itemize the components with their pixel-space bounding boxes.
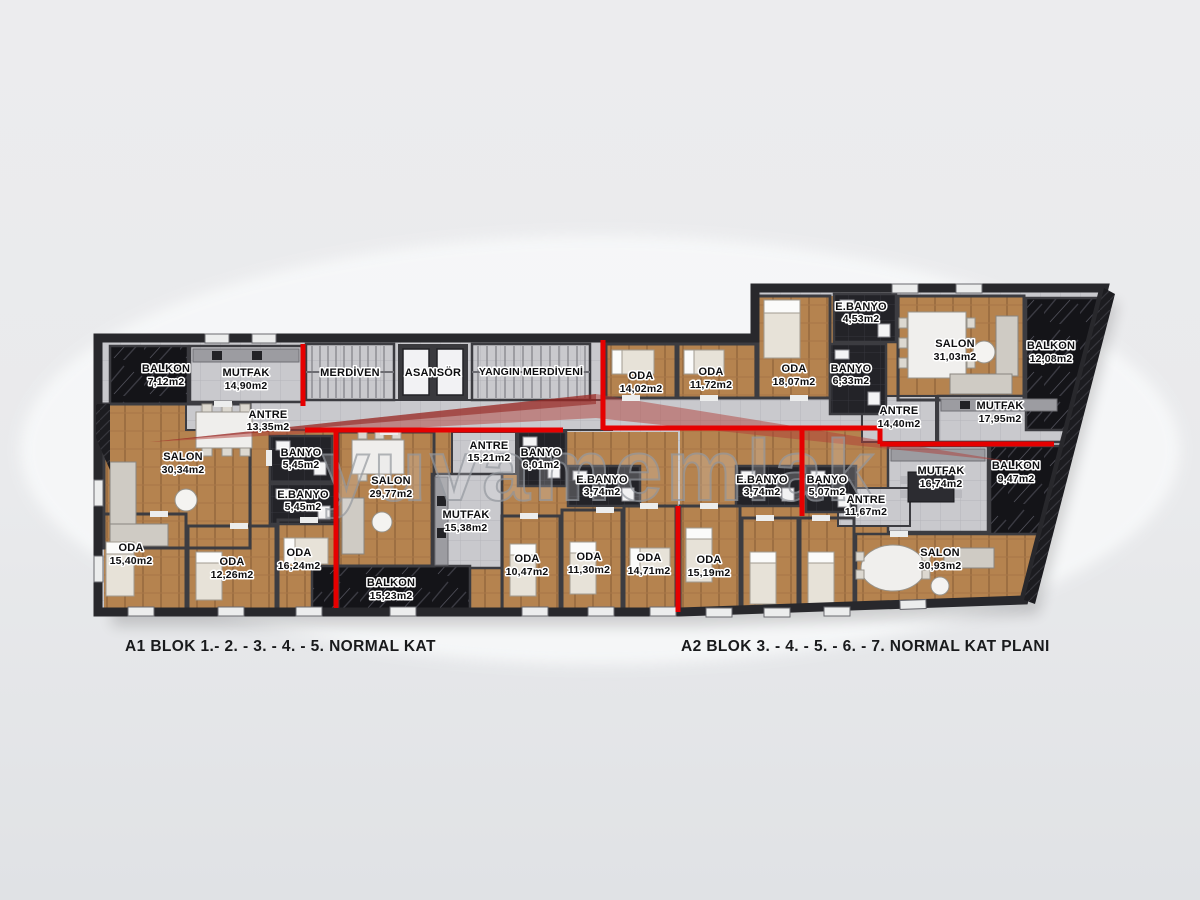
svg-text:BALKON: BALKON xyxy=(992,460,1040,472)
label-antre1: ANTRE13,35m2 xyxy=(247,409,290,433)
svg-text:29,77m2: 29,77m2 xyxy=(370,488,413,500)
label-salon4: SALON30,93m2 xyxy=(919,547,962,572)
svg-text:10,47m2: 10,47m2 xyxy=(506,566,549,578)
svg-text:14,71m2: 14,71m2 xyxy=(628,565,671,577)
caption-a2-block: A2 BLOK 3. - 4. - 5. - 6. - 7. NORMAL KA… xyxy=(681,638,1050,655)
label-antre4: ANTRE11,67m2 xyxy=(845,494,887,518)
svg-text:16,24m2: 16,24m2 xyxy=(278,560,321,572)
svg-text:3,74m2: 3,74m2 xyxy=(584,486,621,498)
label-balkon3: BALKON12,08m2 xyxy=(1027,340,1075,365)
svg-text:12,08m2: 12,08m2 xyxy=(1030,353,1073,365)
svg-text:BALKON: BALKON xyxy=(1027,340,1075,352)
label-antre2: ANTRE15,21m2 xyxy=(468,440,511,464)
svg-text:11,72m2: 11,72m2 xyxy=(690,379,732,391)
svg-text:ODA: ODA xyxy=(576,551,601,563)
svg-text:ANTRE: ANTRE xyxy=(847,494,886,506)
svg-text:ODA: ODA xyxy=(781,363,806,375)
svg-text:ODA: ODA xyxy=(698,366,723,378)
svg-text:ANTRE: ANTRE xyxy=(880,405,919,417)
svg-text:ODA: ODA xyxy=(514,553,539,565)
svg-text:15,38m2: 15,38m2 xyxy=(445,522,488,534)
svg-text:BANYO: BANYO xyxy=(807,474,848,486)
svg-text:13,35m2: 13,35m2 xyxy=(247,421,290,433)
svg-text:6,33m2: 6,33m2 xyxy=(833,375,870,387)
svg-text:ODA: ODA xyxy=(118,542,143,554)
svg-text:MUTFAK: MUTFAK xyxy=(976,400,1023,412)
svg-text:BANYO: BANYO xyxy=(831,363,872,375)
label-ebanyo4: E.BANYO3,74m2 xyxy=(736,474,788,498)
svg-text:MERDİVEN: MERDİVEN xyxy=(320,366,380,379)
svg-text:YANGIN MERDİVENİ: YANGIN MERDİVENİ xyxy=(479,365,583,378)
label-salon2: SALON29,77m2 xyxy=(370,475,413,500)
watermark-text: yuvamemlak xyxy=(322,423,878,519)
svg-text:12,26m2: 12,26m2 xyxy=(211,569,254,581)
svg-text:MUTFAK: MUTFAK xyxy=(442,509,489,521)
svg-text:9,47m2: 9,47m2 xyxy=(998,473,1035,485)
svg-text:E.BANYO: E.BANYO xyxy=(277,489,329,501)
svg-text:30,93m2: 30,93m2 xyxy=(919,560,962,572)
svg-text:BANYO: BANYO xyxy=(281,447,322,459)
label-balkon2: BALKON15,23m2 xyxy=(367,577,415,602)
svg-text:ODA: ODA xyxy=(628,370,653,382)
label-banyo4: BANYO5,07m2 xyxy=(807,474,848,498)
svg-text:E.BANYO: E.BANYO xyxy=(736,474,788,486)
label-banyo1: BANYO5,45m2 xyxy=(281,447,322,471)
svg-text:SALON: SALON xyxy=(935,338,975,350)
svg-text:18,07m2: 18,07m2 xyxy=(773,376,816,388)
svg-text:ANTRE: ANTRE xyxy=(470,440,509,452)
svg-text:5,45m2: 5,45m2 xyxy=(285,501,322,513)
svg-text:7,12m2: 7,12m2 xyxy=(148,376,185,388)
svg-text:ANTRE: ANTRE xyxy=(249,409,288,421)
svg-text:14,40m2: 14,40m2 xyxy=(878,418,921,430)
label-banyo2: BANYO6,01m2 xyxy=(521,447,562,471)
svg-text:ODA: ODA xyxy=(636,552,661,564)
svg-text:15,19m2: 15,19m2 xyxy=(688,567,731,579)
svg-text:SALON: SALON xyxy=(371,475,411,487)
label-salon1: SALON30,34m2 xyxy=(162,451,205,476)
svg-text:MUTFAK: MUTFAK xyxy=(222,367,269,379)
label-merdiven: MERDİVEN xyxy=(320,366,380,379)
caption-a1-block: A1 BLOK 1.- 2. - 3. - 4. - 5. NORMAL KAT xyxy=(125,638,436,655)
svg-text:5,45m2: 5,45m2 xyxy=(283,459,320,471)
svg-text:SALON: SALON xyxy=(163,451,203,463)
balkon1-room xyxy=(110,346,188,404)
svg-text:BALKON: BALKON xyxy=(142,363,190,375)
svg-text:15,21m2: 15,21m2 xyxy=(468,452,511,464)
svg-text:11,67m2: 11,67m2 xyxy=(845,506,887,518)
svg-text:BANYO: BANYO xyxy=(521,447,562,459)
svg-text:ODA: ODA xyxy=(696,554,721,566)
label-yangin: YANGIN MERDİVENİ xyxy=(479,365,583,378)
svg-text:14,90m2: 14,90m2 xyxy=(225,380,268,392)
svg-text:15,40m2: 15,40m2 xyxy=(110,555,153,567)
label-ebanyo2: E.BANYO3,74m2 xyxy=(576,474,628,498)
label-balkon1: BALKON7,12m2 xyxy=(142,363,190,388)
label-mutfak2: MUTFAK15,38m2 xyxy=(442,509,489,534)
svg-text:14,02m2: 14,02m2 xyxy=(620,383,663,395)
svg-text:SALON: SALON xyxy=(920,547,960,559)
svg-text:4,53m2: 4,53m2 xyxy=(843,313,880,325)
svg-text:16,74m2: 16,74m2 xyxy=(920,478,963,490)
floor-plan-canvas: yuvamemlak BA xyxy=(0,0,1200,900)
svg-text:17,95m2: 17,95m2 xyxy=(979,413,1022,425)
label-banyo3: BANYO6,33m2 xyxy=(831,363,872,387)
label-salon3: SALON31,03m2 xyxy=(934,338,977,363)
svg-text:MUTFAK: MUTFAK xyxy=(917,465,964,477)
label-mutfak3: MUTFAK17,95m2 xyxy=(976,400,1023,425)
svg-text:ODA: ODA xyxy=(286,547,311,559)
svg-text:30,34m2: 30,34m2 xyxy=(162,464,205,476)
label-ebanyo1: E.BANYO5,45m2 xyxy=(277,489,329,513)
label-mutfak1: MUTFAK14,90m2 xyxy=(222,367,269,392)
svg-text:ODA: ODA xyxy=(219,556,244,568)
svg-text:11,30m2: 11,30m2 xyxy=(568,564,610,576)
svg-text:E.BANYO: E.BANYO xyxy=(835,301,887,313)
label-mutfak4: MUTFAK16,74m2 xyxy=(917,465,964,490)
svg-text:6,01m2: 6,01m2 xyxy=(523,459,560,471)
svg-text:ASANSÖR: ASANSÖR xyxy=(405,366,461,379)
label-antre3: ANTRE14,40m2 xyxy=(878,405,921,430)
label-asansor: ASANSÖR xyxy=(405,366,461,379)
svg-text:E.BANYO: E.BANYO xyxy=(576,474,628,486)
label-ebanyo3: E.BANYO4,53m2 xyxy=(835,301,887,325)
svg-text:15,23m2: 15,23m2 xyxy=(370,590,413,602)
svg-text:5,07m2: 5,07m2 xyxy=(809,486,846,498)
svg-text:31,03m2: 31,03m2 xyxy=(934,351,977,363)
label-balkon4: BALKON9,47m2 xyxy=(992,460,1040,485)
svg-text:3,74m2: 3,74m2 xyxy=(744,486,781,498)
svg-text:BALKON: BALKON xyxy=(367,577,415,589)
